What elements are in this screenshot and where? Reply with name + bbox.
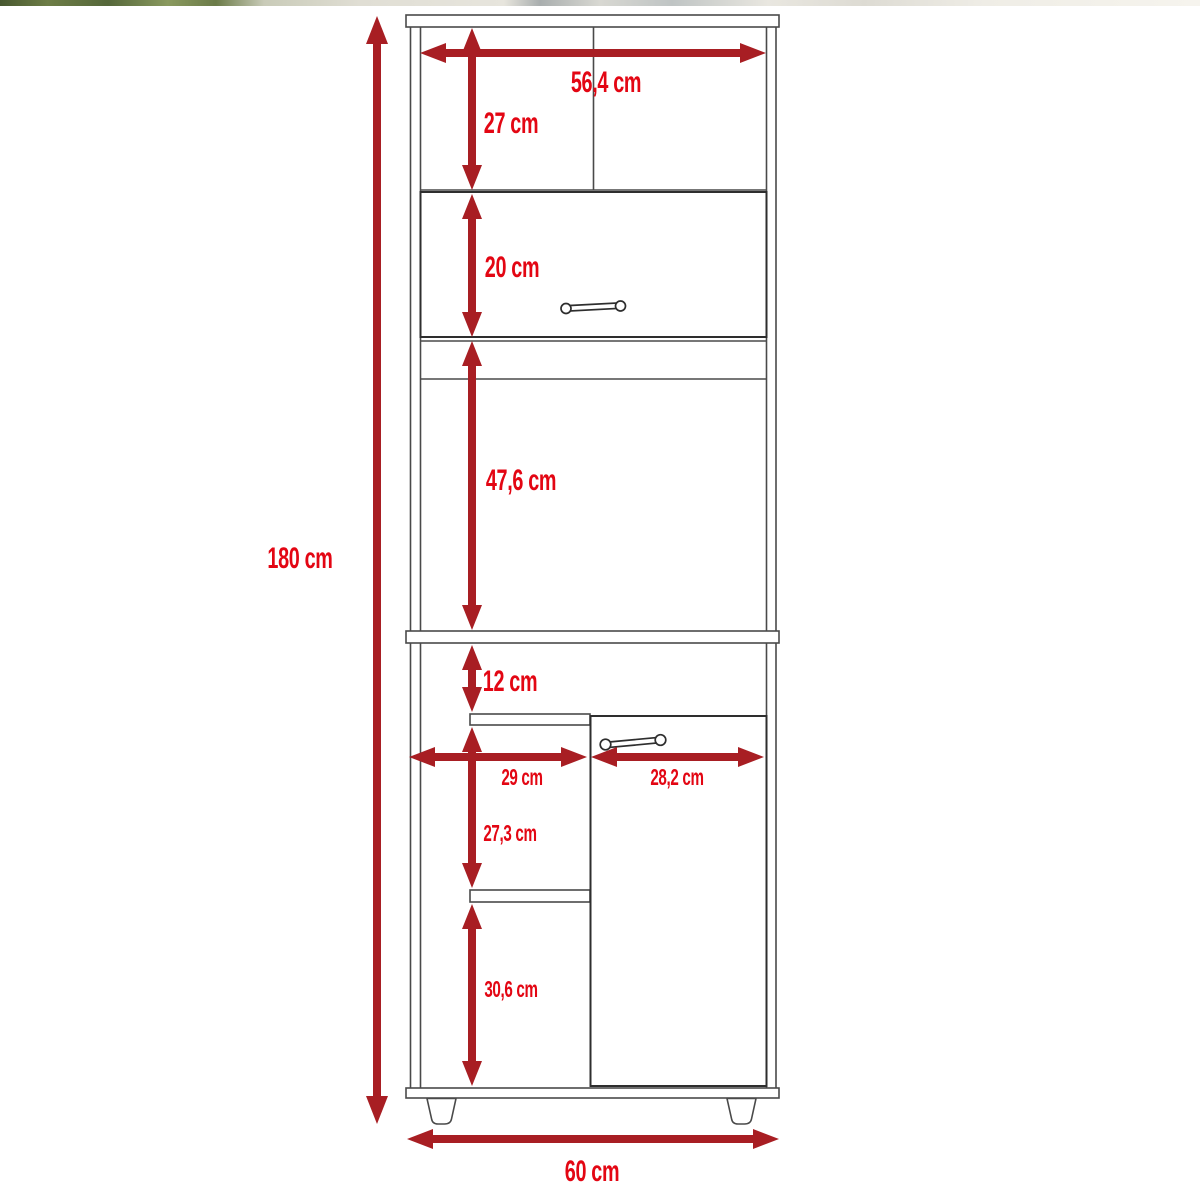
dim-arrow-total-height (366, 16, 388, 1124)
cabinet-right-foot (727, 1099, 756, 1125)
left-shelf-top (470, 714, 590, 725)
dim-label-bottom-shelf-height: 30,6 cm (484, 977, 537, 1003)
dim-label-middle-shelf-height: 27,3 cm (483, 821, 536, 847)
dim-label-flap-height: 20 cm (485, 251, 539, 284)
dimension-labels: 180 cm 56,4 cm 27 cm 20 cm 47,6 cm 12 cm… (267, 66, 703, 1188)
dim-arrow-middle-shelf-height (462, 727, 482, 888)
dim-label-base-width: 60 cm (565, 1155, 619, 1188)
cabinet-left-foot (427, 1099, 456, 1125)
cabinet-dimension-diagram: 180 cm 56,4 cm 27 cm 20 cm 47,6 cm 12 cm… (0, 0, 1200, 1200)
dim-label-niche-height: 12 cm (483, 665, 537, 698)
dim-arrow-niche-height (462, 645, 482, 712)
dim-label-top-width: 56,4 cm (571, 66, 641, 99)
cabinet-outline (406, 15, 779, 1124)
dim-arrow-open-section-height (462, 341, 482, 630)
dim-label-open-section-height: 47,6 cm (486, 464, 556, 497)
dim-arrow-top-section-height (462, 28, 482, 190)
left-shelf-bottom (470, 890, 590, 902)
dimension-arrows (366, 16, 779, 1149)
dim-arrow-left-compartment-width (409, 747, 587, 767)
dim-arrow-base-width (407, 1129, 779, 1149)
dim-label-right-door-width: 28,2 cm (650, 765, 703, 791)
cabinet-bottom-board (406, 1088, 779, 1098)
dim-label-top-section-height: 27 cm (484, 107, 538, 140)
dim-arrow-bottom-shelf-height (462, 904, 482, 1086)
dim-label-total-height: 180 cm (267, 542, 332, 575)
dim-label-left-compartment-width: 29 cm (501, 765, 542, 791)
dim-arrow-flap-height (462, 194, 482, 337)
cabinet-top-board (406, 15, 779, 27)
diagram-canvas: 180 cm 56,4 cm 27 cm 20 cm 47,6 cm 12 cm… (0, 0, 1200, 1200)
door-handle-icon (600, 735, 666, 750)
flap-handle-icon (561, 301, 626, 314)
cabinet-middle-board (406, 631, 779, 643)
